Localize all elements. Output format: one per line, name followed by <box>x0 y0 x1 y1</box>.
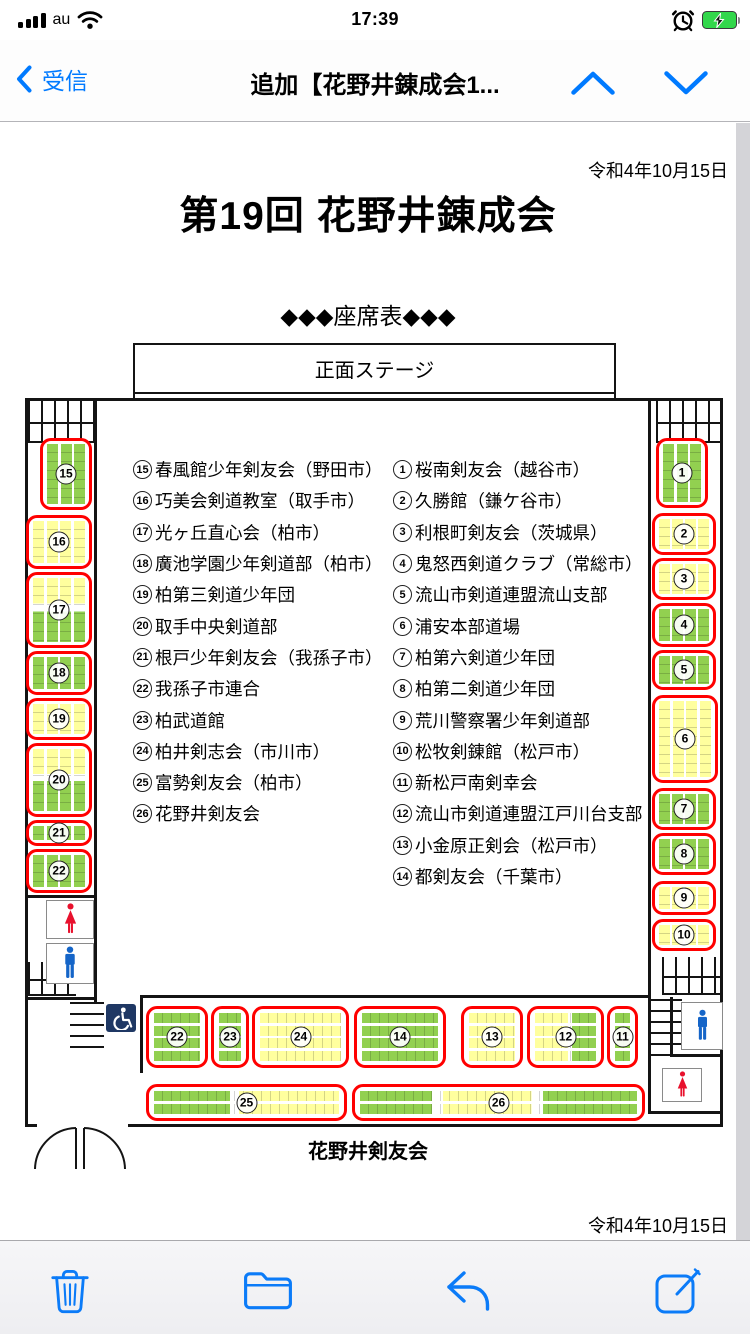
circled-number: 12 <box>393 804 412 823</box>
seat-row <box>154 1013 200 1023</box>
circled-number: 11 <box>393 773 412 792</box>
club-name: 春風館少年剣友会（野田市） <box>155 457 383 482</box>
circled-number: 2 <box>393 491 412 510</box>
women-restroom-icon <box>662 1068 702 1102</box>
wall-bottom-b <box>128 1124 723 1127</box>
legend-item: 15春風館少年剣友会（野田市） <box>133 454 393 485</box>
message-title: 追加【花野井錬成会1... <box>250 65 499 100</box>
seat-row <box>659 609 670 641</box>
legend-item: 9荒川警察署少年剣道部 <box>393 704 653 735</box>
block-number: 7 <box>674 799 695 820</box>
block-number: 26 <box>488 1092 509 1113</box>
circled-number: 22 <box>133 679 152 698</box>
club-name: 廣池学園少年剣道部（柏市） <box>155 551 383 576</box>
block-number: 21 <box>49 823 70 844</box>
seat-block-22: 22 <box>146 1006 208 1068</box>
battery-charging-icon <box>702 11 741 29</box>
status-bar: au 17:39 <box>0 0 750 40</box>
legend-item: 17光ヶ丘直心会（柏市） <box>133 517 393 548</box>
stairs-icon <box>28 401 94 443</box>
block-number: 14 <box>390 1027 411 1048</box>
block-number: 22 <box>167 1027 188 1048</box>
wall-inner-left <box>94 398 97 1002</box>
block-number: 4 <box>674 615 695 636</box>
seat-block-2: 2 <box>652 513 716 555</box>
seat-row <box>33 704 44 734</box>
seat-row <box>74 855 85 887</box>
block-number: 15 <box>56 464 77 485</box>
stage-connector-right <box>614 392 616 399</box>
seat-row <box>362 1013 438 1023</box>
email-body[interactable]: 令和4年10月15日 第19回 花野井錬成会 ◆◆◆座席表◆◆◆ 正面ステージ <box>0 123 750 1240</box>
circled-number: 6 <box>393 617 412 636</box>
seat-row <box>615 1051 630 1061</box>
seat-row <box>659 794 670 824</box>
seat-row <box>74 657 85 689</box>
stairs-icon <box>662 957 720 995</box>
block-number: 1 <box>672 463 693 484</box>
seat-row <box>659 701 670 777</box>
seat-row <box>33 521 44 563</box>
wall-top <box>25 398 723 401</box>
legend-item: 7柏第六剣道少年団 <box>393 642 653 673</box>
club-name: 小金原正剣会（松戸市） <box>415 833 608 858</box>
club-name: 流山市剣道連盟流山支部 <box>415 582 608 607</box>
chevron-down-icon <box>663 70 709 96</box>
club-name: 新松戸南剣幸会 <box>415 770 538 795</box>
club-name: 松牧剣錬館（松戸市） <box>415 739 590 764</box>
club-name: 取手中央剣道部 <box>155 614 278 639</box>
wall-left-strip-bottom <box>25 997 97 1000</box>
legend-item: 1桜南剣友会（越谷市） <box>393 454 653 485</box>
circled-number: 10 <box>393 742 412 761</box>
seat-row <box>698 839 709 869</box>
seat-block-17: 17 <box>26 572 92 648</box>
seat-block-3: 3 <box>652 558 716 600</box>
seat-row <box>659 656 670 684</box>
seat-block-11: 11 <box>607 1006 638 1068</box>
lightning-bolt-icon <box>713 13 725 28</box>
circled-number: 8 <box>393 679 412 698</box>
legend-item: 13小金原正剣会（松戸市） <box>393 830 653 861</box>
stairs-icon <box>70 1002 104 1048</box>
wheelchair-icon <box>106 1004 136 1032</box>
seat-row <box>469 1013 515 1023</box>
stage-connector-left <box>133 392 135 399</box>
seat-row <box>74 521 85 563</box>
club-name: 光ヶ丘直心会（柏市） <box>155 520 330 545</box>
circled-number: 20 <box>133 617 152 636</box>
compose-button[interactable] <box>650 1263 706 1319</box>
block-number: 13 <box>482 1027 503 1048</box>
clock-time: 17:39 <box>0 9 750 30</box>
circled-number: 13 <box>393 836 412 855</box>
legend-item: 19柏第三剣道少年団 <box>133 579 393 610</box>
seat-block-6: 6 <box>652 695 718 783</box>
reply-icon <box>444 1269 492 1313</box>
document-date-bottom: 令和4年10月15日 <box>588 1212 728 1238</box>
block-number: 3 <box>674 569 695 590</box>
seat-block-12: 12 <box>527 1006 604 1068</box>
club-name: 柏第三剣道少年団 <box>155 582 295 607</box>
seat-row <box>615 1013 630 1023</box>
legend-item: 21根戸少年剣友会（我孫子市） <box>133 642 393 673</box>
trash-icon <box>49 1266 91 1316</box>
legend-item: 24柏井剣志会（市川市） <box>133 736 393 767</box>
seat-row <box>698 794 709 824</box>
legend-item: 23柏武道館 <box>133 704 393 735</box>
legend-item: 6浦安本部道場 <box>393 610 653 641</box>
circled-number: 26 <box>133 804 152 823</box>
block-number: 23 <box>220 1027 241 1048</box>
block-number: 12 <box>555 1027 576 1048</box>
seat-row <box>260 1051 341 1061</box>
document-footer: 花野井剣友会 <box>0 1135 736 1164</box>
men-restroom-icon <box>681 1002 723 1050</box>
seat-row <box>33 578 44 642</box>
move-to-folder-button[interactable] <box>240 1263 296 1319</box>
circled-number: 21 <box>133 648 152 667</box>
circled-number: 25 <box>133 773 152 792</box>
women-restroom-icon <box>46 900 94 939</box>
wall-restroom-left <box>25 895 97 898</box>
club-name: 富勢剣友会（柏市） <box>155 770 313 795</box>
circled-number: 17 <box>133 523 152 542</box>
mail-toolbar <box>0 1240 750 1334</box>
seat-row <box>362 1051 438 1061</box>
block-number: 8 <box>674 844 695 865</box>
seat-row <box>74 826 85 840</box>
seat-row <box>74 704 85 734</box>
back-button[interactable]: 受信 <box>16 62 88 96</box>
club-name: 浦安本部道場 <box>415 614 520 639</box>
seat-block-20: 20 <box>26 743 92 817</box>
legend-item: 22我孫子市連合 <box>133 673 393 704</box>
legend-item: 2久勝館（鎌ケ谷市） <box>393 485 653 516</box>
legend-left: 15春風館少年剣友会（野田市）16巧美会剣道教室（取手市）17光ヶ丘直心会（柏市… <box>133 454 393 830</box>
club-name: 柏井剣志会（市川市） <box>155 739 330 764</box>
seat-row <box>219 1051 241 1061</box>
back-button-label: 受信 <box>42 62 88 96</box>
block-number: 11 <box>612 1027 633 1048</box>
men-restroom-icon <box>46 943 94 984</box>
seat-row <box>698 925 709 945</box>
seat-block-15: 15 <box>40 438 92 510</box>
compose-icon <box>654 1267 702 1315</box>
block-number: 22 <box>49 861 70 882</box>
previous-message-button[interactable] <box>570 70 616 101</box>
floor-plan: 15春風館少年剣友会（野田市）16巧美会剣道教室（取手市）17光ヶ丘直心会（柏市… <box>0 123 750 1240</box>
seat-block-19: 19 <box>26 698 92 740</box>
seat-row <box>260 1013 341 1023</box>
stairs-icon <box>656 401 722 443</box>
wall-corridor-left <box>140 995 143 1073</box>
block-number: 10 <box>674 925 695 946</box>
legend-item: 3利根町剣友会（茨城県） <box>393 517 653 548</box>
club-name: 流山市剣道連盟江戸川台支部 <box>415 801 643 826</box>
seat-block-25: 25 <box>146 1084 347 1121</box>
club-name: 我孫子市連合 <box>155 676 260 701</box>
seat-row <box>33 657 44 689</box>
alarm-clock-icon <box>671 8 695 32</box>
seat-block-14: 14 <box>354 1006 446 1068</box>
seat-block-24: 24 <box>252 1006 349 1068</box>
seat-block-4: 4 <box>652 603 716 647</box>
seat-row <box>659 519 670 549</box>
circled-number: 15 <box>133 460 152 479</box>
block-number: 19 <box>49 709 70 730</box>
wall-corridor-top <box>140 995 651 998</box>
block-number: 24 <box>290 1027 311 1048</box>
circled-number: 16 <box>133 491 152 510</box>
circled-number: 19 <box>133 585 152 604</box>
club-name: 都剣友会（千葉市） <box>415 864 573 889</box>
trash-button[interactable] <box>42 1263 98 1319</box>
club-name: 鬼怒西剣道クラブ（常総市） <box>415 551 643 576</box>
mail-nav-bar: 受信 追加【花野井錬成会1... <box>0 40 750 122</box>
wall-right-region-bottom <box>648 1111 723 1114</box>
legend-item: 18廣池学園少年剣道部（柏市） <box>133 548 393 579</box>
seat-row <box>74 749 85 811</box>
circled-number: 7 <box>393 648 412 667</box>
seat-row <box>698 609 709 641</box>
folder-icon <box>243 1270 293 1312</box>
block-number: 18 <box>49 663 70 684</box>
seat-row <box>33 826 44 840</box>
seat-row <box>535 1051 596 1061</box>
club-name: 柏第二剣道少年団 <box>415 676 555 701</box>
chevron-left-icon <box>16 65 32 93</box>
seat-block-22: 22 <box>26 849 92 893</box>
club-name: 柏武道館 <box>155 708 225 733</box>
club-name: 久勝館（鎌ケ谷市） <box>415 488 573 513</box>
seat-row <box>659 925 670 945</box>
block-number: 25 <box>236 1092 257 1113</box>
circled-number: 23 <box>133 711 152 730</box>
seat-row <box>659 887 670 909</box>
legend-item: 5流山市剣道連盟流山支部 <box>393 579 653 610</box>
seat-row <box>219 1013 241 1023</box>
block-number: 6 <box>675 729 696 750</box>
seat-block-1: 1 <box>656 438 708 508</box>
seat-row <box>698 656 709 684</box>
seat-row <box>698 519 709 549</box>
circled-number: 18 <box>133 554 152 573</box>
seat-row <box>698 564 709 594</box>
seat-block-23: 23 <box>211 1006 249 1068</box>
chevron-up-icon <box>570 70 616 96</box>
circled-number: 4 <box>393 554 412 573</box>
seat-row <box>535 1013 596 1023</box>
seat-row <box>33 749 44 811</box>
seat-block-8: 8 <box>652 833 716 875</box>
seat-block-7: 7 <box>652 788 716 830</box>
circled-number: 14 <box>393 867 412 886</box>
club-name: 巧美会剣道教室（取手市） <box>155 488 365 513</box>
iphone-screen: au 17:39 <box>0 0 750 1334</box>
seat-block-10: 10 <box>652 919 716 951</box>
circled-number: 24 <box>133 742 152 761</box>
club-name: 根戸少年剣友会（我孫子市） <box>155 645 383 670</box>
seat-block-16: 16 <box>26 515 92 569</box>
seat-block-13: 13 <box>461 1006 523 1068</box>
club-name: 柏第六剣道少年団 <box>415 645 555 670</box>
legend-item: 11新松戸南剣幸会 <box>393 767 653 798</box>
legend-item: 14都剣友会（千葉市） <box>393 861 653 892</box>
club-name: 花野井剣友会 <box>155 801 260 826</box>
circled-number: 9 <box>393 711 412 730</box>
legend-item: 20取手中央剣道部 <box>133 610 393 641</box>
circled-number: 5 <box>393 585 412 604</box>
seat-block-9: 9 <box>652 881 716 915</box>
seat-row <box>698 887 709 909</box>
legend-item: 12流山市剣道連盟江戸川台支部 <box>393 798 653 829</box>
legend-item: 26花野井剣友会 <box>133 798 393 829</box>
seat-row <box>74 578 85 642</box>
legend-right: 1桜南剣友会（越谷市）2久勝館（鎌ケ谷市）3利根町剣友会（茨城県）4鬼怒西剣道ク… <box>393 454 653 892</box>
legend-item: 25富勢剣友会（柏市） <box>133 767 393 798</box>
seat-block-21: 21 <box>26 820 92 846</box>
block-number: 17 <box>49 600 70 621</box>
block-number: 16 <box>49 532 70 553</box>
club-name: 桜南剣友会（越谷市） <box>415 457 590 482</box>
circled-number: 1 <box>393 460 412 479</box>
legend-item: 16巧美会剣道教室（取手市） <box>133 485 393 516</box>
seat-block-26: 26 <box>352 1084 645 1121</box>
legend-item: 8柏第二剣道少年団 <box>393 673 653 704</box>
seat-row <box>659 839 670 869</box>
seat-row <box>154 1051 200 1061</box>
seat-row <box>33 855 44 887</box>
club-name: 利根町剣友会（茨城県） <box>415 520 608 545</box>
club-name: 荒川警察署少年剣道部 <box>415 708 590 733</box>
block-number: 20 <box>49 770 70 791</box>
block-number: 2 <box>674 524 695 545</box>
stairs-icon <box>650 999 682 1057</box>
circled-number: 3 <box>393 523 412 542</box>
legend-item: 10松牧剣錬館（松戸市） <box>393 736 653 767</box>
next-message-button[interactable] <box>663 70 709 101</box>
seat-block-18: 18 <box>26 651 92 695</box>
seat-row <box>700 701 711 777</box>
seat-row <box>469 1051 515 1061</box>
block-number: 5 <box>674 660 695 681</box>
seat-row <box>659 564 670 594</box>
reply-button[interactable] <box>440 1263 496 1319</box>
block-number: 9 <box>674 888 695 909</box>
seat-block-5: 5 <box>652 650 716 690</box>
legend-item: 4鬼怒西剣道クラブ（常総市） <box>393 548 653 579</box>
